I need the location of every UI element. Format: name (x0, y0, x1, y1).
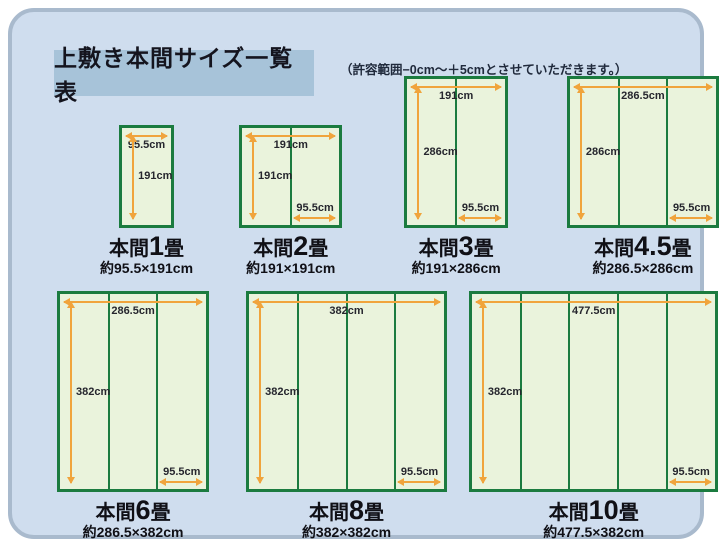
width-dimension-arrow (411, 86, 500, 88)
diagram-honma-3jo: 191cm286cm95.5cm本間3畳約191×286cm (404, 76, 507, 276)
height-dimension-arrow (482, 302, 484, 483)
tatami-mat: 191cm191cm95.5cm (239, 125, 342, 228)
diagram-name-suffix: 畳 (364, 502, 384, 524)
mat-width-label: 95.5cm (291, 202, 340, 214)
diagram-name: 本間3畳 (412, 232, 501, 260)
diagram-honma-2jo: 191cm191cm95.5cm本間2畳約191×191cm (239, 125, 342, 276)
diagram-name-prefix: 本間 (549, 502, 589, 524)
mat-width-label: 95.5cm (157, 466, 206, 478)
height-dimension-arrow (580, 87, 582, 219)
diagram-row-1: 95.5cm191cm本間1畳約95.5×191cm191cm191cm95.5… (12, 82, 719, 276)
diagram-name-prefix: 本間 (109, 238, 149, 260)
height-dimension-arrow (259, 302, 261, 483)
diagram-name: 本間6畳 (83, 496, 184, 524)
diagram-name-number: 10 (589, 495, 619, 525)
mat-seam (666, 294, 668, 489)
mat-seam (346, 294, 348, 489)
diagram-size-label: 約95.5×191cm (100, 260, 193, 276)
height-dimension-label: 382cm (488, 386, 522, 398)
diagram-caption: 本間6畳約286.5×382cm (83, 496, 184, 540)
width-dimension-arrow (64, 301, 202, 303)
width-dimension-arrow (246, 135, 335, 137)
diagram-size-label: 約382×382cm (302, 524, 391, 540)
diagram-name-suffix: 畳 (151, 502, 171, 524)
width-dimension-arrow (253, 301, 440, 303)
width-dimension-arrow (476, 301, 712, 303)
mat-seam (568, 294, 570, 489)
height-dimension-label: 382cm (265, 386, 299, 398)
width-dimension-label: 477.5cm (472, 305, 716, 317)
diagram-name-suffix: 畳 (672, 238, 692, 260)
height-dimension-arrow (417, 87, 419, 219)
mat-width-arrow (459, 217, 501, 219)
diagram-size-label: 約286.5×286cm (592, 260, 693, 276)
diagram-name-prefix: 本間 (96, 502, 136, 524)
diagram-name-suffix: 畳 (474, 238, 494, 260)
diagram-name-prefix: 本間 (253, 238, 293, 260)
diagram-name-prefix: 本間 (594, 238, 634, 260)
width-dimension-label: 382cm (249, 305, 444, 317)
width-dimension-label: 286.5cm (60, 305, 206, 317)
diagram-name-prefix: 本間 (309, 502, 349, 524)
tatami-mat: 286.5cm286cm95.5cm (567, 76, 719, 228)
diagram-name-number: 6 (136, 495, 151, 525)
diagram-name: 本間4.5畳 (592, 232, 693, 260)
height-dimension-label: 191cm (138, 170, 172, 182)
diagram-name-number: 8 (349, 495, 364, 525)
tolerance-note: （許容範囲−0cm〜＋5cmとさせていただきます。） (340, 59, 627, 78)
diagram-name-suffix: 畳 (619, 502, 639, 524)
diagram-name: 本間8畳 (302, 496, 391, 524)
mat-width-arrow (398, 481, 440, 483)
diagram-honma-8jo: 382cm382cm95.5cm本間8畳約382×382cm (246, 291, 447, 540)
diagram-size-label: 約477.5×382cm (543, 524, 644, 540)
mat-width-label: 95.5cm (395, 466, 444, 478)
tatami-mat: 95.5cm191cm (119, 125, 174, 228)
diagram-caption: 本間10畳約477.5×382cm (543, 496, 644, 540)
height-dimension-label: 286cm (586, 146, 620, 158)
mat-width-label: 95.5cm (456, 202, 505, 214)
mat-width-arrow (294, 217, 336, 219)
diagram-name: 本間1畳 (100, 232, 193, 260)
diagram-size-label: 約286.5×382cm (83, 524, 184, 540)
tatami-mat: 286.5cm382cm95.5cm (57, 291, 209, 492)
height-dimension-arrow (70, 302, 72, 483)
height-dimension-label: 382cm (76, 386, 110, 398)
mat-seam (394, 294, 396, 489)
diagram-honma-10jo: 477.5cm382cm95.5cm本間10畳約477.5×382cm (469, 291, 719, 540)
diagram-size-label: 約191×286cm (412, 260, 501, 276)
mat-seam (617, 294, 619, 489)
height-dimension-arrow (252, 136, 254, 219)
diagram-honma-1jo: 95.5cm191cm本間1畳約95.5×191cm (100, 125, 193, 276)
diagram-caption: 本間8畳約382×382cm (302, 496, 391, 540)
diagram-caption: 本間4.5畳約286.5×286cm (592, 232, 693, 276)
mat-width-arrow (670, 481, 712, 483)
diagram-name-prefix: 本間 (419, 238, 459, 260)
height-dimension-arrow (132, 136, 134, 219)
diagram-name-suffix: 畳 (164, 238, 184, 260)
diagram-caption: 本間2畳約191×191cm (246, 232, 335, 276)
diagram-honma-4-5jo: 286.5cm286cm95.5cm本間4.5畳約286.5×286cm (567, 76, 719, 276)
diagram-caption: 本間1畳約95.5×191cm (100, 232, 193, 276)
diagram-name-number: 2 (293, 231, 308, 261)
diagram-row-2: 286.5cm382cm95.5cm本間6畳約286.5×382cm382cm3… (12, 297, 718, 540)
diagram-name-number: 4.5 (634, 231, 672, 261)
diagram-name: 本間10畳 (543, 496, 644, 524)
tatami-mat: 382cm382cm95.5cm (246, 291, 447, 492)
diagram-name: 本間2畳 (246, 232, 335, 260)
mat-width-label: 95.5cm (667, 466, 716, 478)
mat-seam (156, 294, 158, 489)
mat-width-arrow (670, 217, 712, 219)
tatami-mat: 477.5cm382cm95.5cm (469, 291, 719, 492)
height-dimension-label: 286cm (423, 146, 457, 158)
diagram-size-label: 約191×191cm (246, 260, 335, 276)
mat-width-label: 95.5cm (667, 202, 716, 214)
height-dimension-label: 191cm (258, 170, 292, 182)
width-dimension-label: 286.5cm (570, 90, 716, 102)
mat-width-arrow (160, 481, 202, 483)
size-chart-panel: 上敷き本間サイズ一覧表 （許容範囲−0cm〜＋5cmとさせていただきます。） 9… (8, 8, 704, 539)
width-dimension-arrow (574, 86, 712, 88)
diagram-honma-6jo: 286.5cm382cm95.5cm本間6畳約286.5×382cm (57, 291, 209, 540)
diagram-caption: 本間3畳約191×286cm (412, 232, 501, 276)
diagram-name-number: 1 (149, 231, 164, 261)
tatami-mat: 191cm286cm95.5cm (404, 76, 507, 228)
diagram-name-suffix: 畳 (308, 238, 328, 260)
diagram-name-number: 3 (459, 231, 474, 261)
